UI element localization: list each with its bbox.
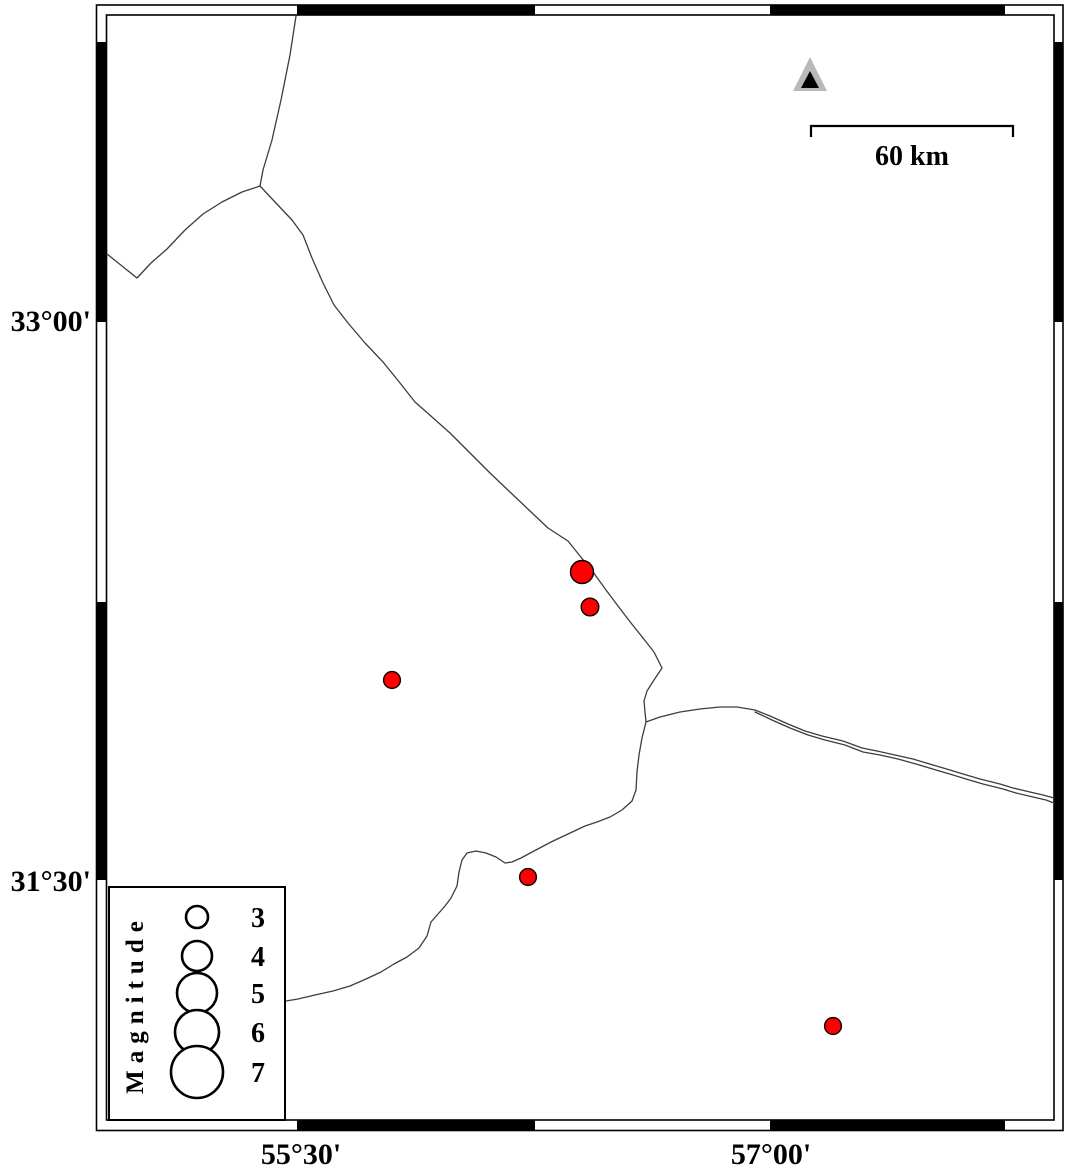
frame-segment-bottom — [770, 1120, 1005, 1131]
frame-segment-right — [1054, 42, 1063, 322]
axis-label-latitude: 31°30' — [11, 865, 91, 898]
frame-segment-bottom — [297, 1120, 535, 1131]
frame-segment-right — [1054, 602, 1063, 880]
legend-magnitude-value: 3 — [251, 903, 265, 934]
frame-segment-top — [770, 5, 1005, 15]
legend-magnitude-circle-3 — [186, 906, 208, 928]
map-canvas: 60 kmMagnitude3456733°00'31°30'55°30'57°… — [0, 0, 1066, 1173]
legend-magnitude-value: 7 — [251, 1058, 265, 1089]
earthquake-marker — [384, 672, 401, 689]
frame-segment-top — [297, 5, 535, 15]
legend-magnitude-value: 4 — [251, 942, 265, 973]
axis-label-longitude: 55°30' — [261, 1138, 341, 1171]
earthquake-marker — [581, 598, 599, 616]
frame-segment-left — [97, 42, 107, 322]
earthquake-marker — [571, 561, 594, 584]
frame-segment-left — [97, 602, 107, 880]
earthquake-marker — [825, 1018, 842, 1035]
legend-magnitude-circle-4 — [182, 941, 212, 971]
legend-title: Magnitude — [122, 914, 149, 1094]
axis-label-latitude: 33°00' — [11, 305, 91, 338]
axis-label-longitude: 57°00' — [731, 1138, 811, 1171]
legend-magnitude-circle-5 — [177, 973, 217, 1013]
legend-magnitude-value: 6 — [251, 1018, 265, 1049]
legend-magnitude-value: 5 — [251, 979, 265, 1010]
seismicity-map-figure: 60 kmMagnitude3456733°00'31°30'55°30'57°… — [0, 0, 1066, 1173]
scale-bar-label: 60 km — [875, 141, 949, 172]
legend-magnitude-circle-7 — [171, 1046, 223, 1098]
earthquake-marker — [520, 869, 537, 886]
